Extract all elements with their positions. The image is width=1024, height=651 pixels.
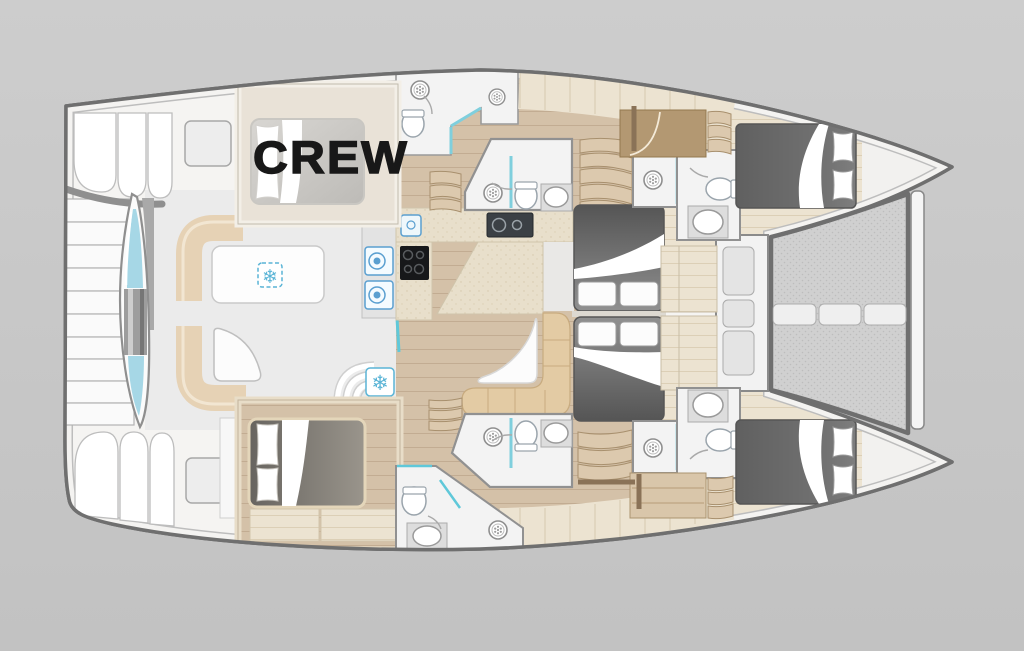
svg-text:❄: ❄ xyxy=(262,267,278,288)
svg-text:CREW: CREW xyxy=(253,132,409,183)
svg-text:❄: ❄ xyxy=(371,372,389,395)
